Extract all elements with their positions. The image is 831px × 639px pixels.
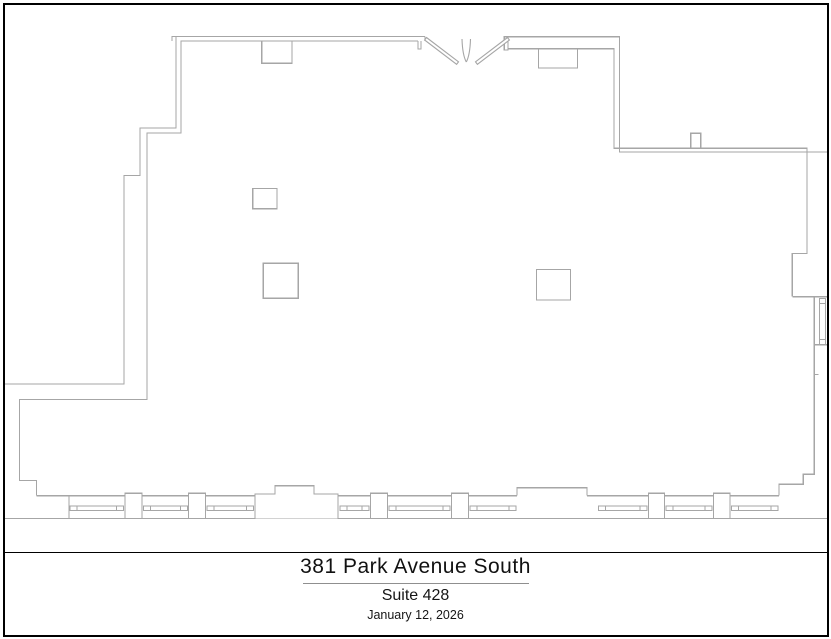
bay-projections: [255, 486, 587, 519]
plan-date: January 12, 2026: [0, 608, 831, 623]
outer-wall-outline: [5, 37, 828, 519]
window-glazing-right: [820, 299, 826, 345]
door-leaf-right: [476, 38, 510, 65]
suite-number: Suite 428: [0, 586, 831, 606]
drawing-sheet: 381 Park Avenue South Suite 428 January …: [0, 0, 831, 639]
building-name-underline: [303, 583, 529, 584]
floor-plan-drawing: [0, 0, 831, 552]
window-glazing-bottom: [70, 506, 778, 511]
title-block: 381 Park Avenue South Suite 428 January …: [0, 554, 831, 623]
window-sill-line: [37, 496, 780, 519]
title-block-divider: [4, 552, 827, 553]
interior-columns: [253, 41, 701, 300]
inner-wall-outline: [20, 41, 828, 496]
door-swing-arc-right: [466, 39, 470, 62]
building-name: 381 Park Avenue South: [0, 554, 831, 580]
door-swing-arc-left: [462, 39, 466, 62]
entry-double-doors: [425, 38, 510, 65]
door-leaf-left: [425, 38, 459, 65]
